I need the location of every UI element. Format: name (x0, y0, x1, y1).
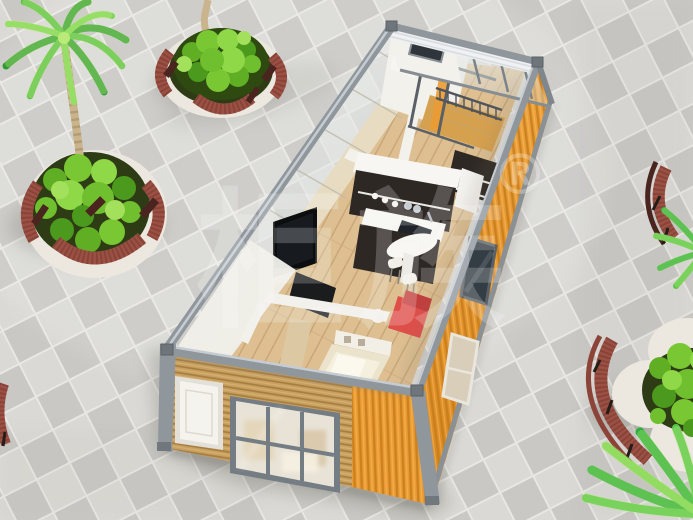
render-scene: 柜族 ® (0, 0, 693, 520)
palm-trunk (204, 0, 208, 34)
corner-casting-base (425, 496, 439, 505)
corner-casting (532, 57, 543, 67)
scene-canvas: 柜族 ® (0, 0, 693, 520)
registered-mark-icon: ® (492, 143, 548, 208)
corner-casting (161, 344, 173, 355)
watermark-brand-text: 柜族 (196, 176, 516, 350)
corner-casting-base (157, 442, 171, 451)
corner-casting (411, 385, 423, 396)
corner-casting (386, 21, 397, 31)
